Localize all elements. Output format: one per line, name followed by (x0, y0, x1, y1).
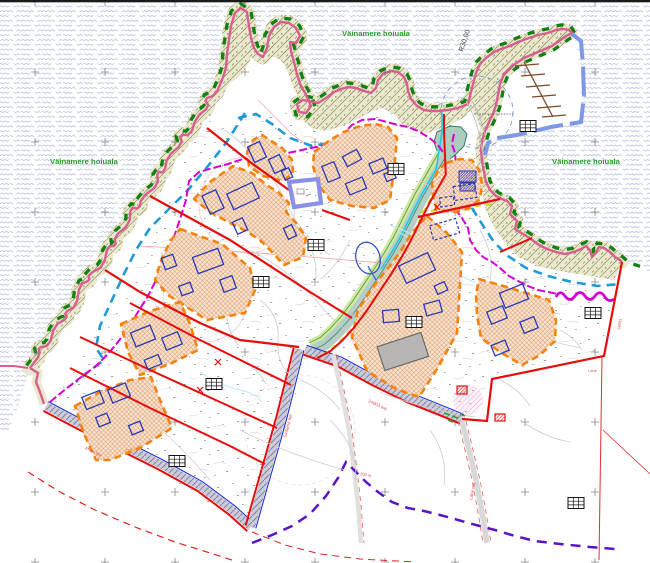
svg-text:Väinamere hoiuala: Väinamere hoiuala (552, 157, 621, 166)
svg-text:Väinamere hoiuala: Väinamere hoiuala (342, 29, 411, 38)
svg-text:Väinamere hoiuala: Väinamere hoiuala (50, 157, 119, 166)
svg-text:Lahe: Lahe (588, 368, 598, 373)
